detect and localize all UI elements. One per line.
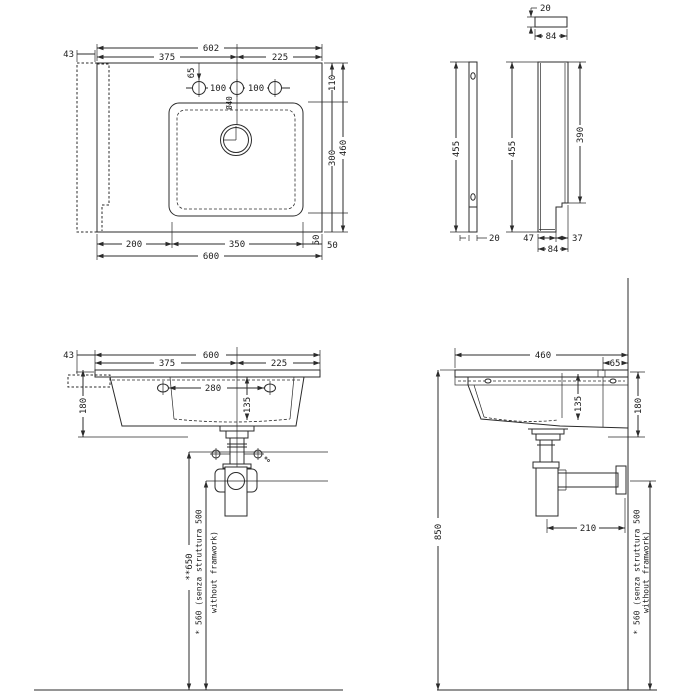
side-top-slab [455,370,628,377]
dim-plan-65: 65 [187,68,197,79]
dim-plan-225: 225 [272,53,288,63]
dim-plan-100b: 100 [248,84,264,94]
dim-bracket-front-455: 455 [452,141,462,157]
dim-side-850: 850 [434,524,444,540]
dim-bracket-top-84: 84 [546,32,557,42]
dim-front-375: 375 [159,359,175,369]
dim-plan-43: 43 [63,50,74,60]
front-elevation-view: 280 135 43 600 375 225 180 [34,347,343,690]
dim-plan-375: 375 [159,53,175,63]
bracket-hole-top [471,73,475,79]
bracket-side-view: 455 390 47 37 84 [506,62,586,255]
dim-front-600: 600 [203,351,219,361]
dim-bracket-front-20: 20 [489,234,500,244]
dim-bracket-side-390: 390 [576,127,586,143]
dim-side-210: 210 [580,524,596,534]
dim-bracket-side-37: 37 [572,234,583,244]
dim-front-43: 43 [63,351,74,361]
front-top-slab [95,370,320,377]
dim-bracket-side-47: 47 [523,234,534,244]
dim-plan-300: 300 [328,150,338,166]
side-elevation-view: 460 65 135 180 210 850 * 560 (senza [434,278,657,690]
dim-plan-100a: 100 [210,84,226,94]
front-trap-body [225,467,247,516]
dim-side-560-line1: * 560 (senza struttura 500 [633,509,642,634]
plan-bracket-hidden [77,63,97,232]
side-trap-body [536,468,558,516]
dim-plan-600: 600 [203,252,219,262]
dim-plan-460: 460 [339,140,349,156]
side-drain-flange [528,429,568,440]
dim-front-135: 135 [243,397,253,413]
dim-side-460: 460 [535,351,551,361]
dim-plan-110: 110 [328,75,338,91]
side-outlet-pipe [558,473,618,487]
dim-front-560-line2: without framwork) [210,531,219,613]
dim-bracket-side-84: 84 [548,245,559,255]
plan-bowl-outline [169,103,303,216]
dim-bracket-top-20: 20 [540,4,551,14]
dim-side-135: 135 [574,396,584,412]
dim-front-225: 225 [271,359,287,369]
dim-plan-50-horizontal: 50 [327,241,338,251]
bracket-front-view: 455 20 [450,62,500,244]
dim-side-560-line2: without framwork) [642,531,651,613]
side-screw-front [485,379,491,383]
bracket-top-view: 20 84 [527,4,567,42]
side-basin-outline [468,377,628,428]
dim-plan-602: 602 [203,44,219,54]
dim-front-560-line1: * 560 (senza struttura 500 [195,509,204,634]
bracket-hole-bottom [471,194,475,200]
plan-bracket-profile-hidden [97,64,109,231]
dim-front-280: 280 [205,384,221,394]
dim-bracket-side-455: 455 [508,141,518,157]
dim-side-180: 180 [634,398,644,414]
side-screw-back [610,379,616,383]
side-trap-top [533,462,559,468]
technical-drawing-sheet: 65 100 100 Ø40 43 602 375 225 110 300 46… [0,0,700,700]
dim-front-180: 180 [79,398,89,414]
dim-plan-200: 200 [126,240,142,250]
dim-plan-350: 350 [229,240,245,250]
side-tailpipe [537,440,555,462]
washbasin-drawing: 65 100 100 Ø40 43 602 375 225 110 300 46… [0,0,700,700]
dim-plan-drain-diameter: Ø40 [225,96,234,110]
bracket-side-outline [538,62,568,232]
bracket-top-outline [535,17,567,27]
dim-front-650: **650 [185,553,195,580]
plan-view: 65 100 100 Ø40 43 602 375 225 110 300 46… [63,44,349,262]
dim-side-65: 65 [610,359,621,369]
